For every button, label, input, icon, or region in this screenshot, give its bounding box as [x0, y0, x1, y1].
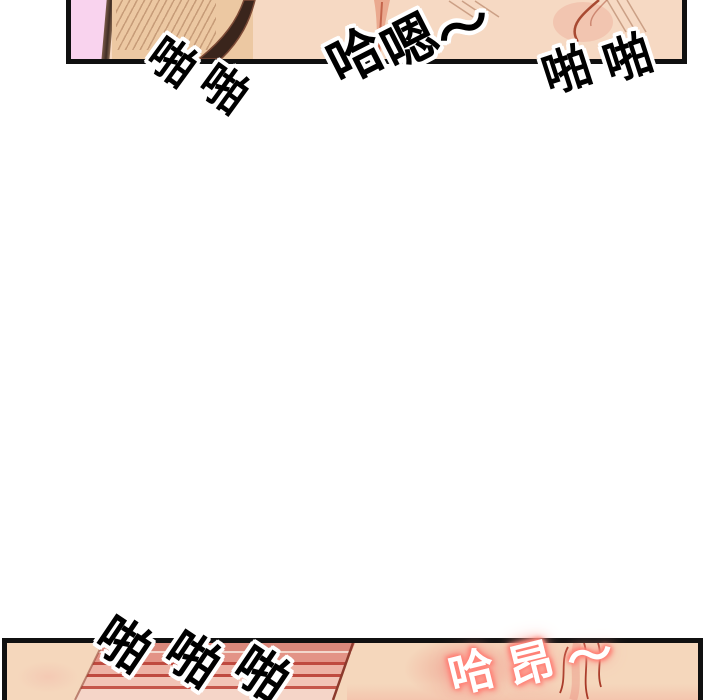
bottom-panel-art-lines — [7, 643, 698, 700]
sfx-layer: 啪啪 哈嗯～ 啪啪 啪啪啪 哈昂～ — [0, 0, 720, 700]
sfx-top-left-slap: 啪啪 — [0, 0, 720, 700]
sfx-top-moan: 哈嗯～ — [0, 0, 720, 700]
sfx-top-right-slap: 啪啪 — [0, 0, 720, 700]
comic-page: 啪啪 哈嗯～ 啪啪 啪啪啪 哈昂～ — [0, 0, 720, 700]
comic-panel-bottom — [2, 638, 703, 700]
sfx-bottom-slap: 啪啪啪 — [0, 0, 720, 700]
comic-panel-top — [66, 0, 687, 64]
sfx-bottom-moan: 哈昂～ — [0, 0, 720, 700]
top-panel-art-lines — [71, 0, 682, 59]
